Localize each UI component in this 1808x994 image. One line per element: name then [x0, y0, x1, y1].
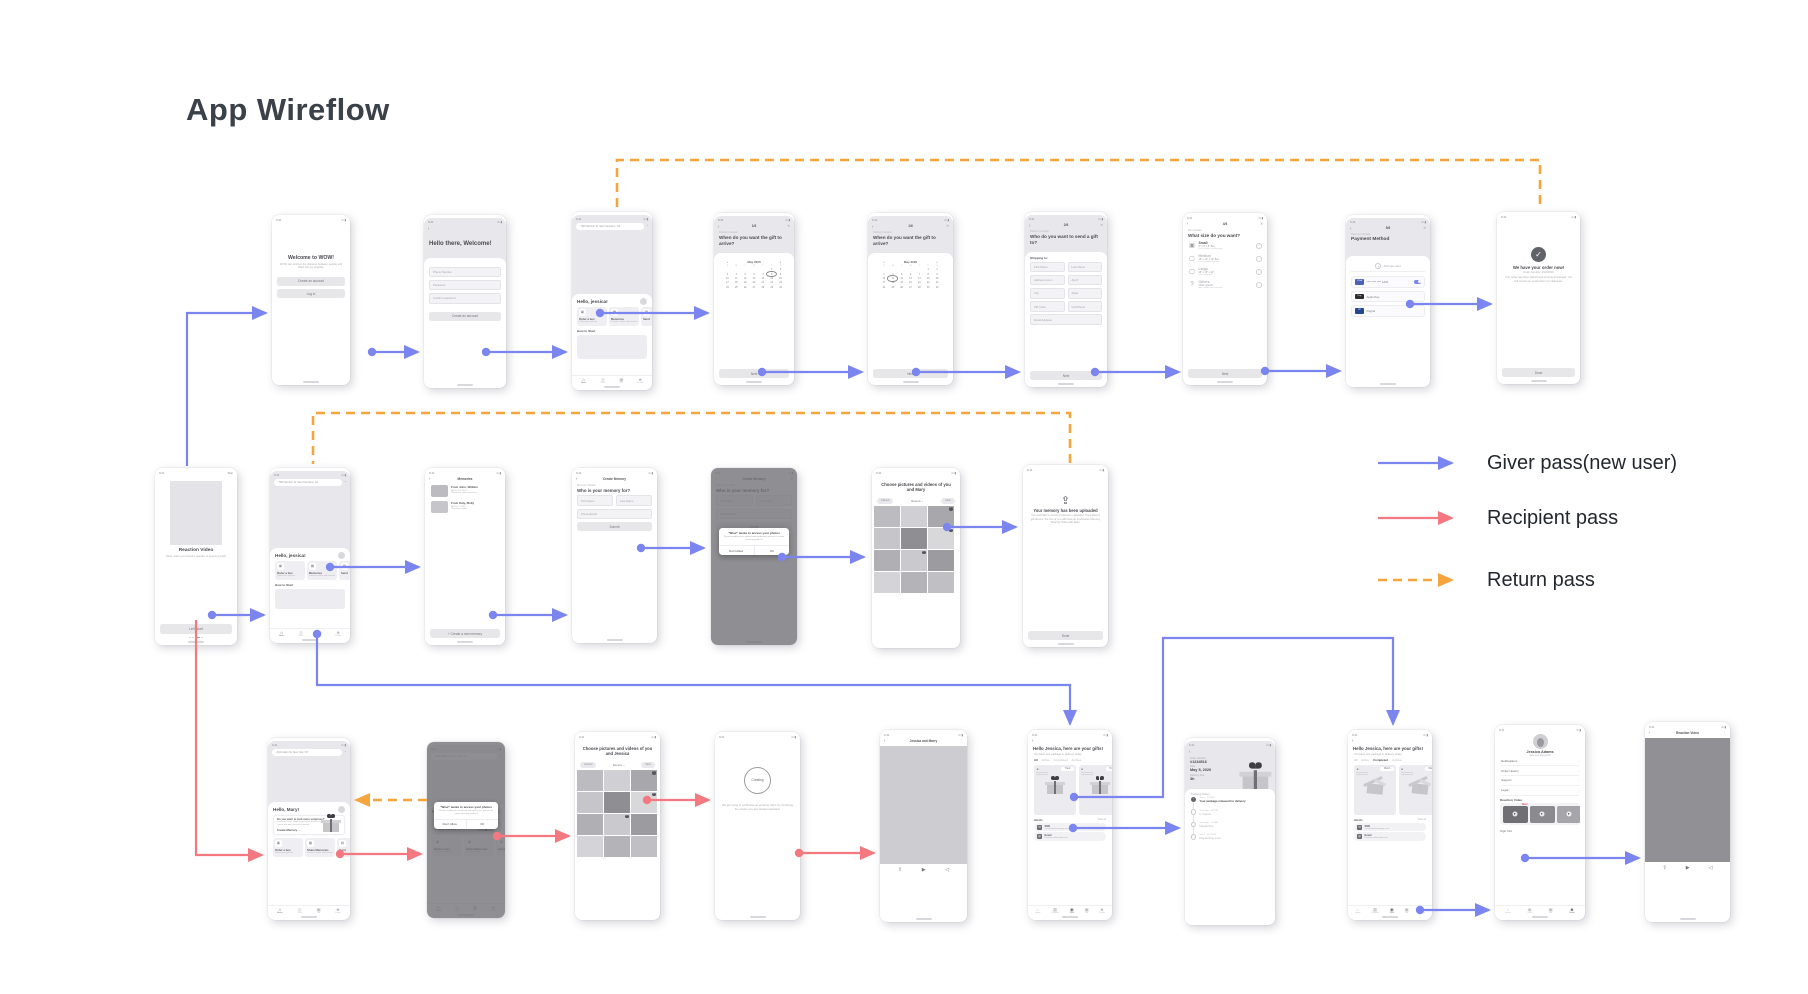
view-all-link[interactable]: View all	[1097, 818, 1106, 822]
tab-archive[interactable]: Archive	[1392, 758, 1402, 762]
close-icon[interactable]: ✕	[782, 224, 790, 228]
calendar-day[interactable]: 27	[906, 285, 915, 289]
filter-tabs: AllActiveCompletedArchive	[1028, 757, 1112, 764]
flex-gap	[714, 290, 794, 367]
tab-archive[interactable]: Archive	[1072, 758, 1082, 762]
alert-subtitle: Reaction video delivered	[1045, 837, 1068, 839]
spacer	[155, 475, 237, 479]
photo-tile[interactable]	[901, 528, 927, 549]
home-indicator	[903, 381, 919, 383]
calendar-day[interactable]: 30	[933, 285, 942, 289]
search-input[interactable]: ◦ 768 Harrison St, San Francisco, CA	[576, 223, 644, 230]
nav-item-track[interactable]: ◎Track	[298, 631, 303, 637]
avatar[interactable]	[338, 552, 345, 559]
close-icon[interactable]: ✕	[1255, 222, 1263, 226]
nav-item-gift[interactable]: ▣Gift	[1548, 908, 1552, 914]
photo-tile[interactable]	[577, 792, 603, 813]
back-icon[interactable]: ‹	[1032, 738, 1040, 743]
back-icon[interactable]: ‹	[1029, 223, 1037, 228]
nav-label: Home	[1355, 912, 1360, 914]
status-time: 9:41	[576, 217, 581, 221]
avatar[interactable]	[640, 298, 647, 305]
gift-box-illustration	[1409, 775, 1431, 794]
nav-item-calendar[interactable]: ▦Calendar	[1371, 908, 1379, 914]
nav-item-home[interactable]: ⌂Home	[1505, 908, 1510, 914]
size-option[interactable]: ▢Medium16" x 16" x 16" BoxFor a blanket …	[1188, 252, 1262, 265]
promo-card[interactable]: Do you want to look more surprises?Come …	[273, 815, 345, 835]
button[interactable]: Let's start	[160, 624, 232, 633]
back-icon[interactable]: ‹	[429, 476, 437, 481]
spacer	[268, 756, 350, 800]
nav-item-home[interactable]: ⌂Home	[277, 908, 282, 914]
address-line	[1401, 774, 1413, 775]
size-option[interactable]: ?OthersOther optionsAny custom size you …	[1188, 278, 1262, 291]
feature-card[interactable]: ▦MemoriesCreate a video with friends	[609, 307, 639, 326]
photo-tile[interactable]	[631, 836, 657, 857]
input-field[interactable]: Address Line 1	[1030, 275, 1065, 285]
placeholder-panel	[577, 335, 647, 359]
nav-item-profile[interactable]: ☻Profile	[1569, 908, 1575, 914]
flex-gap	[155, 559, 237, 623]
spacer	[1346, 244, 1430, 254]
track-pill-button[interactable]: Track	[1106, 767, 1112, 772]
input-field[interactable]: ZIP Code	[1030, 301, 1065, 311]
alert-icon: ✉	[1357, 825, 1362, 830]
screen-title: Who do you want to send a gift to?	[1025, 233, 1107, 246]
sign-out-link[interactable]: Sign Out	[1500, 829, 1580, 833]
memory-list-item[interactable]: From John, William▦ Dec 24, 2019◦ Reacti…	[431, 485, 499, 497]
feature-card[interactable]: ▤Send	[339, 561, 350, 580]
screen-nav-row: ‹1/6✕	[714, 222, 794, 230]
feature-card[interactable]: ▤Send	[337, 838, 350, 857]
back-icon[interactable]: ‹	[1350, 226, 1358, 231]
nav-item-track[interactable]: ◎Track	[297, 908, 302, 914]
album-dropdown[interactable]: Recent ⌄	[911, 499, 923, 503]
menu-label: Notifications	[1501, 759, 1517, 763]
input-field[interactable]: Confirm password	[429, 293, 501, 303]
flex-gap	[424, 322, 506, 382]
timeline-line	[1193, 802, 1194, 809]
more-icon[interactable]: ⋮	[1718, 731, 1726, 735]
feature-card-icon: ▣	[579, 309, 586, 316]
input-field[interactable]: First Name	[577, 495, 613, 505]
screen-reaction-video: 9:41ılı ▮‹Reaction Video⋮⇧▶◁	[1645, 722, 1730, 922]
spacer	[715, 796, 800, 804]
screen-home-mary: 9:41ılı ▮◦ 444 Fulton St, New York, NY◔H…	[268, 738, 350, 920]
video-thumbnail[interactable]: ▶New!	[1503, 806, 1528, 823]
menu-label: Legal	[1501, 788, 1508, 792]
cancel-chip[interactable]: Cancel	[877, 498, 893, 504]
play-icon[interactable]: ▶	[922, 867, 926, 873]
calendar-prev-icon[interactable]: ‹	[884, 260, 885, 264]
track-pill-button[interactable]: Watch	[1380, 767, 1394, 772]
nav-item-gift[interactable]: ▣Gift	[316, 908, 320, 914]
photo-tile[interactable]	[631, 814, 657, 835]
feature-card[interactable]: ▣Order a boxOrder your gift box	[577, 307, 607, 326]
back-icon[interactable]: ‹	[718, 224, 726, 229]
home-indicator	[303, 381, 319, 383]
tab-all[interactable]: All	[1034, 758, 1038, 762]
flex-gap	[572, 533, 657, 638]
gift-card[interactable]: ☻Watch	[1399, 765, 1433, 815]
photo-tile[interactable]	[874, 572, 900, 593]
calendar-day[interactable]: 29	[767, 285, 776, 289]
button[interactable]: Next	[1030, 371, 1102, 380]
calendar-day[interactable]: 24	[723, 285, 732, 289]
input-field[interactable]: Phone Number	[429, 267, 501, 277]
input-field-row: First NameLast Name	[577, 495, 652, 505]
home-indicator	[1217, 381, 1233, 383]
view-all-link[interactable]: View all	[1417, 818, 1426, 822]
status-icons: ılı ▮	[342, 473, 347, 477]
spacer	[272, 270, 350, 275]
feature-card-subtitle: Order your gift box	[275, 852, 301, 855]
input-field[interactable]: First Name	[1030, 262, 1065, 272]
flex-gap	[1025, 326, 1107, 369]
permission-dim-overlay	[427, 742, 505, 918]
greeting-row: Hello, jessica!	[270, 550, 350, 560]
screen-welcome: 9:41ılı ▮Welcome to WOW!WOW can shorten …	[272, 215, 350, 385]
nav-item-calendar[interactable]: ▦Calendar	[1051, 908, 1059, 914]
alert-row[interactable]: ✉SMSCustomized message sent	[1354, 823, 1426, 831]
alert-subtitle: Customized message sent	[1365, 828, 1390, 830]
nav-item-profile[interactable]: ☻Profile	[637, 378, 643, 384]
tab-completed[interactable]: Completed	[1054, 758, 1068, 762]
content-sheet: Hello, jessica!▣Order a boxOrder your gi…	[270, 548, 350, 641]
gift-box-illustration	[1044, 775, 1066, 794]
box-icon: ▢	[1188, 268, 1196, 275]
video-area[interactable]	[1645, 738, 1730, 862]
screen-nav-row: ‹4/6✕	[1183, 220, 1267, 228]
payment-toggle[interactable]	[1414, 280, 1421, 284]
screen-gifts-completed: 9:41ılı ▮‹Hello Jessica, here are your g…	[1348, 730, 1432, 920]
radio-icon[interactable]	[1256, 282, 1262, 288]
photo-tile[interactable]	[604, 792, 630, 813]
calendar-next-icon[interactable]: ›	[780, 260, 781, 264]
album-dropdown[interactable]: Recent ⌄	[613, 763, 625, 767]
photo-tile[interactable]	[577, 814, 603, 835]
photo-tile[interactable]	[604, 770, 630, 791]
nav-item-gift[interactable]: ▣Gift	[1405, 908, 1409, 914]
radio-icon[interactable]	[1256, 269, 1262, 275]
nav-item-track[interactable]: ◉Track	[1069, 908, 1074, 914]
section-label: Reaction Video	[1500, 798, 1580, 802]
input-field[interactable]: Phone/Email	[577, 509, 652, 519]
alert-row[interactable]: @EmailReaction video delivered	[1034, 832, 1106, 840]
next-chip[interactable]: Next	[641, 762, 655, 768]
back-icon[interactable]: ‹	[1649, 730, 1657, 735]
home-indicator	[457, 384, 473, 386]
timeline-title: Tracking history	[1191, 793, 1269, 796]
calendar-day[interactable]: 24	[880, 285, 889, 289]
payment-option[interactable]: PPPaypal	[1351, 305, 1425, 317]
tab-active[interactable]: Active	[1042, 758, 1050, 762]
photo-tile[interactable]	[874, 550, 900, 571]
dialog-ok-button[interactable]: OK	[755, 546, 790, 555]
bell-icon[interactable]: ◔	[344, 750, 346, 754]
photo-tile[interactable]: ✓	[928, 528, 954, 549]
nav-label: Home	[1035, 912, 1040, 914]
tab-all[interactable]: All	[1354, 758, 1357, 762]
button[interactable]: Create an account	[429, 312, 501, 321]
next-chip[interactable]: Next	[941, 498, 955, 504]
content-sheet: Hello, jessica!▣Order a boxOrder your gi…	[572, 294, 652, 388]
home-indicator	[916, 918, 932, 920]
nav-label: Profile	[637, 382, 643, 384]
box-icon: ▢	[1188, 255, 1196, 262]
spacer	[272, 222, 350, 254]
photo-tile[interactable]	[928, 572, 954, 593]
photo-tile[interactable]	[901, 572, 927, 593]
input-field[interactable]: Cell Phone	[1068, 301, 1103, 311]
input-field[interactable]: Email Address	[1030, 314, 1102, 324]
radio-icon[interactable]: ✓	[1256, 243, 1262, 249]
selected-check-icon: ✓	[949, 507, 952, 510]
calendar-day[interactable]: 29	[924, 285, 933, 289]
search-bar[interactable]: ◦ 768 Harrison St, San Francisco, CA◔	[576, 223, 648, 230]
gift-card[interactable]: ☻Watch	[1354, 765, 1396, 815]
nav-item-home[interactable]: ⌂Home	[1035, 908, 1040, 914]
feature-card-icon: ▦	[309, 563, 316, 570]
payment-option[interactable]: PayApple Pay	[1351, 291, 1425, 303]
alerts-section: AlertsView all✉SMSCustomized message sen…	[1028, 816, 1112, 842]
gift-box-illustration	[1364, 775, 1386, 794]
alert-row[interactable]: ✉SMSCustomized message sent	[1034, 823, 1106, 831]
button[interactable]: Next	[873, 369, 948, 378]
close-icon[interactable]: ✕	[1418, 226, 1426, 230]
alert-icon: @	[1037, 834, 1042, 839]
nav-item-track[interactable]: ◉Track	[1389, 908, 1394, 914]
search-bar[interactable]: ◦ 444 Fulton St, New York, NY◔	[272, 749, 346, 756]
screen-home-jessica-1: 9:41ılı ▮◦ 768 Harrison St, San Francisc…	[572, 212, 652, 390]
calendar-next-icon[interactable]: ›	[937, 260, 938, 264]
nav-item-home[interactable]: ⌂Home	[1355, 908, 1360, 914]
nav-item-gift[interactable]: ▣Gift	[1085, 908, 1089, 914]
status-bar: 9:41ılı ▮	[572, 217, 652, 221]
mute-icon[interactable]: ◁	[945, 867, 949, 873]
input-field[interactable]: City	[1030, 288, 1065, 298]
photo-tile[interactable]	[577, 770, 603, 791]
gift-card[interactable]: ☻Track	[1034, 765, 1076, 815]
calendar-day[interactable]: 26	[897, 285, 906, 289]
box-icon: ?	[1188, 282, 1196, 288]
add-new-card-button[interactable]: +Add new card	[1351, 263, 1425, 273]
flex-gap	[1645, 873, 1730, 917]
tab-completed[interactable]: Completed	[1373, 758, 1388, 762]
calendar-day[interactable]: 27	[750, 285, 759, 289]
nav-item-home[interactable]: ⌂Home	[279, 631, 284, 637]
button[interactable]: Log In	[277, 289, 345, 298]
nav-item-track[interactable]: ◎Track	[600, 378, 605, 384]
calendar-day[interactable]: 28	[915, 285, 924, 289]
payment-label: **** **** **** 1234	[1367, 280, 1412, 284]
calendar-prev-icon[interactable]: ‹	[727, 260, 728, 264]
calendar-day[interactable]: 25	[732, 285, 741, 289]
screen-creating: 9:41ılı ▮CreatingWe are trying to synthe…	[715, 732, 800, 920]
nav-item-profile[interactable]: ☻Profile	[335, 631, 341, 637]
feature-card[interactable]: ▦Share MemoriesCreate a video with frien…	[305, 838, 335, 857]
bell-icon[interactable]: ◔	[646, 224, 648, 228]
bell-icon[interactable]: ◔	[344, 480, 346, 484]
bottom-nav: ⌂Home◉Track▣Gift☻Profile	[1495, 905, 1585, 914]
nav-item-track[interactable]: ◉Track	[1527, 908, 1532, 914]
video-thumbnail[interactable]: ▶	[1530, 806, 1555, 823]
tab-active[interactable]: Active	[1361, 758, 1369, 762]
photo-tile[interactable]	[874, 506, 900, 527]
button[interactable]: + Create a new memory	[430, 629, 500, 638]
photo-tile[interactable]	[874, 528, 900, 549]
nav-label: Profile	[335, 912, 341, 914]
dialog-title: "Wow" wants to access your photos	[719, 528, 790, 536]
video-thumbnail[interactable]: ▶	[1557, 806, 1581, 823]
profile-avatar[interactable]	[1533, 734, 1548, 749]
nav-item-profile[interactable]: ☻Profile	[1099, 908, 1105, 914]
photo-tile[interactable]: ✓	[631, 770, 657, 791]
dialog-dont-allow-button[interactable]: Don't Allow	[434, 820, 466, 829]
button[interactable]: Done	[1502, 368, 1575, 377]
menu-item-notifications[interactable]: Notifications›	[1501, 757, 1579, 767]
back-icon[interactable]: ‹	[872, 224, 880, 229]
cancel-chip[interactable]: Cancel	[580, 762, 596, 768]
feature-card[interactable]: ▦MemoriesCreate a video with friends	[307, 561, 337, 580]
screen-title: Hello there, Welcome!	[424, 240, 506, 250]
payment-brand-chip: VISA	[1355, 279, 1364, 285]
home-indicator	[1382, 916, 1398, 918]
calendar-day[interactable]: 26	[741, 285, 750, 289]
nav-item-home[interactable]: ⌂Home	[581, 378, 586, 384]
size-note: For a blanket or jacket	[1199, 261, 1254, 263]
status-icons: ılı ▮	[644, 217, 649, 221]
button[interactable]: Next	[1188, 369, 1262, 378]
video-area[interactable]	[880, 746, 967, 864]
memory-list-item[interactable]: From Katy, Molly▦ Nov 2, 2019◦ Reaction …	[431, 501, 499, 513]
photo-tile[interactable]: ✓	[928, 506, 954, 527]
connector-recipient-18	[196, 620, 262, 855]
feature-card-subtitle: Create a video with friends	[309, 575, 335, 578]
calendar-day[interactable]: 25	[888, 285, 897, 289]
calendar-week: 24252627282930	[880, 285, 942, 289]
share-icon[interactable]: ⇧	[898, 867, 902, 873]
calendar-day[interactable]: 30	[776, 285, 785, 289]
gift-card[interactable]: ☻Track	[1079, 765, 1113, 815]
close-icon[interactable]: ✕	[941, 224, 949, 228]
size-option[interactable]: ▣Small8" x 8" x 8" BoxFor a t-shirt or c…	[1188, 239, 1262, 252]
recipient-icon: ☻	[1356, 767, 1359, 771]
chevron-right-icon: ›	[1578, 788, 1579, 792]
spacer	[868, 247, 953, 251]
button[interactable]: Submit	[577, 522, 652, 531]
track-pill-button[interactable]: Watch	[1425, 767, 1432, 772]
mute-icon[interactable]: ◁	[1709, 865, 1713, 871]
size-note: Any custom size you want	[1199, 287, 1254, 289]
input-field[interactable]: Last Name	[1068, 262, 1103, 272]
nav-item-profile[interactable]: ☻Profile	[1419, 908, 1425, 914]
gray-header: 9:41ılı ▮‹Hello there, Welcome!	[424, 218, 506, 264]
button[interactable]: Done	[1028, 631, 1103, 640]
spacer	[714, 255, 794, 259]
input-field[interactable]: State	[1068, 288, 1103, 298]
photo-tile[interactable]	[901, 506, 927, 527]
back-icon[interactable]: ‹	[1189, 749, 1197, 754]
greeting-text: Hello, jessica!	[577, 299, 608, 304]
screen-title: Your memory has been uploaded	[1023, 507, 1108, 514]
feature-card[interactable]: ▤Send	[641, 307, 652, 326]
greeting-row: Hello, jessica!	[572, 296, 652, 306]
input-field[interactable]: Apt #	[1068, 275, 1103, 285]
play-icon[interactable]: ▶	[1686, 865, 1690, 871]
feature-card[interactable]: ▣Order a boxOrder your gift box	[275, 561, 305, 580]
back-icon[interactable]: ‹	[1187, 221, 1195, 226]
menu-item-legal[interactable]: Legal›	[1501, 786, 1579, 796]
more-icon[interactable]: ⋮	[955, 739, 963, 743]
button[interactable]: Create an account	[277, 277, 345, 286]
photo-tile[interactable]: ✓	[604, 814, 630, 835]
screen-title: Hello Jessica, here are your gifts!	[1028, 745, 1112, 753]
status-bar: 9:41ılı ▮	[268, 743, 350, 747]
pagination-dot	[192, 637, 194, 639]
search-bar[interactable]: ◦ 768 Harrison St, San Francisco, CA◔	[274, 479, 346, 486]
menu-item-order-history[interactable]: Order History›	[1501, 766, 1579, 776]
photo-tile[interactable]	[577, 836, 603, 857]
photo-tile[interactable]: ✓	[631, 792, 657, 813]
back-icon[interactable]: ‹	[1352, 738, 1360, 743]
dialog-ok-button[interactable]: OK	[467, 820, 498, 829]
alert-row[interactable]: @EmailReaction video delivered	[1354, 832, 1426, 840]
status-icons: ılı ▮	[342, 743, 347, 747]
search-input[interactable]: ◦ 444 Fulton St, New York, NY	[272, 749, 342, 756]
nav-title: 4/6	[1195, 222, 1255, 226]
size-options: ▣Small8" x 8" x 8" BoxFor a t-shirt or c…	[1183, 239, 1267, 291]
radio-icon[interactable]	[1256, 256, 1262, 262]
nav-item-profile[interactable]: ☻Profile	[335, 908, 341, 914]
address-line	[1081, 774, 1093, 775]
close-icon[interactable]: ✕	[1095, 223, 1103, 227]
nav-title: 1/6	[880, 224, 941, 228]
input-field[interactable]: Password	[429, 280, 501, 290]
screen-calendar-2: 9:41ılı ▮‹1/6✕Delivery DetailsWhen do yo…	[868, 213, 953, 385]
screen-box-size: 9:41ılı ▮‹4/6✕Box DetailsWhat size do yo…	[1183, 213, 1267, 385]
back-icon[interactable]: ‹	[884, 738, 892, 743]
recipient-icon: ☻	[1036, 767, 1039, 771]
menu-item-support[interactable]: Support›	[1501, 776, 1579, 786]
search-input[interactable]: ◦ 768 Harrison St, San Francisco, CA	[274, 479, 342, 486]
input-field[interactable]: Last Name	[616, 495, 652, 505]
feature-card[interactable]: ▣Order a boxOrder your gift box	[273, 838, 303, 857]
order-summary: Order Number#1234516DateMay 5, 2020Deliv…	[1185, 755, 1275, 781]
button[interactable]: Next	[719, 369, 789, 378]
back-icon[interactable]: ‹	[428, 226, 436, 231]
track-pill-button[interactable]: Track	[1061, 767, 1074, 772]
screen-nav-row: ‹5/6✕	[1346, 224, 1430, 232]
timeline-status: In Transit	[1199, 812, 1218, 819]
calendar-day[interactable]: 28	[758, 285, 767, 289]
nav-item-gift[interactable]: ▣Gift	[619, 378, 623, 384]
pagination-dots	[155, 635, 237, 640]
gift-box-illustration	[1089, 775, 1111, 794]
photo-tile[interactable]: ✓	[901, 550, 927, 571]
dialog-dont-allow-button[interactable]: Don't Allow	[719, 546, 755, 555]
size-option[interactable]: ▢Large16" x 16" x 24"For a large gift	[1188, 265, 1262, 278]
photo-tile[interactable]	[928, 550, 954, 571]
back-icon[interactable]: ‹	[576, 476, 584, 481]
nav-label: Profile	[1099, 912, 1105, 914]
selected-check-icon: ✓	[652, 771, 655, 774]
content-sheet: ‹May 2020›SMTWTFS12345678910111213141516…	[868, 253, 953, 383]
payment-option[interactable]: VISA**** **** **** 1234	[1351, 276, 1425, 288]
share-icon[interactable]: ⇧	[1663, 865, 1667, 871]
photo-tile[interactable]	[604, 836, 630, 857]
nav-item-gift[interactable]: ▣Gift	[317, 631, 321, 637]
